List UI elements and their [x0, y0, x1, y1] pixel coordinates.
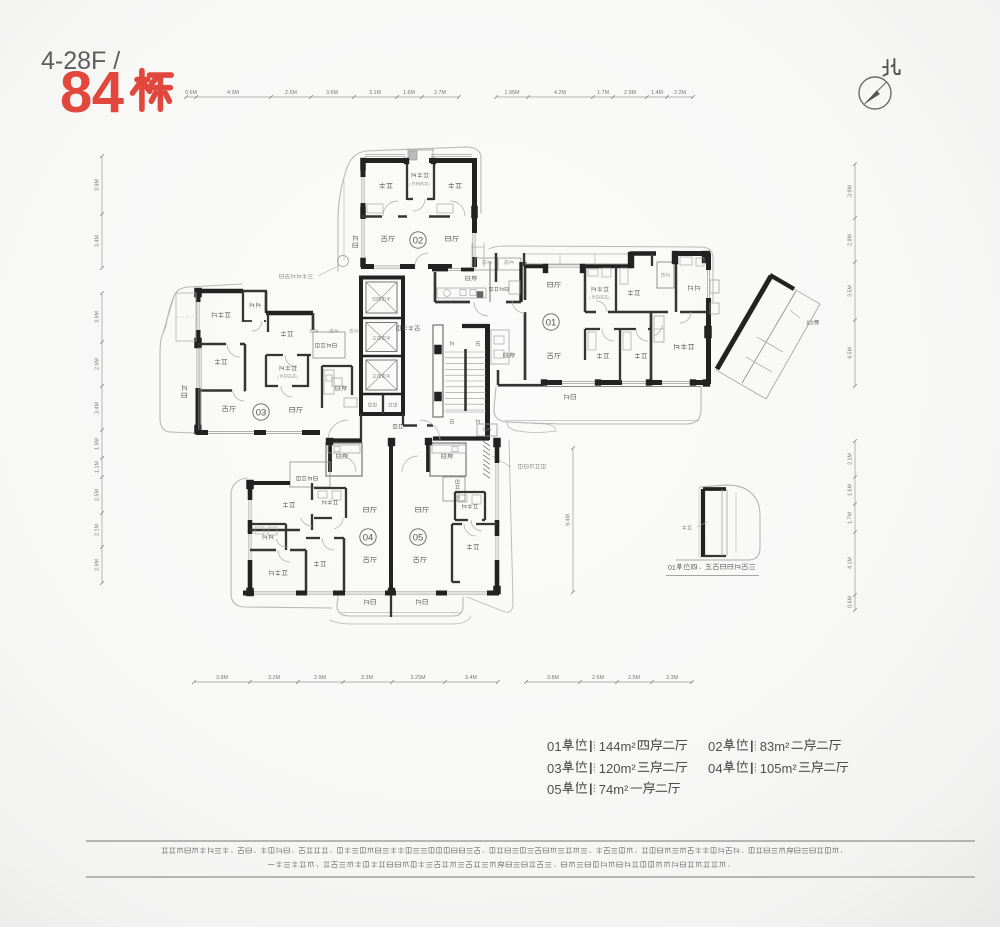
- svg-text:84: 84: [60, 60, 124, 125]
- svg-text:2.5M: 2.5M: [628, 675, 640, 681]
- svg-text:01: 01: [668, 565, 676, 572]
- svg-text:2.1M: 2.1M: [848, 452, 854, 464]
- svg-text:3.3M: 3.3M: [666, 675, 678, 681]
- svg-text:1.6M: 1.6M: [848, 483, 854, 495]
- svg-text:74m²: 74m²: [599, 782, 629, 797]
- svg-text:02: 02: [708, 739, 723, 754]
- svg-text:2.2M: 2.2M: [674, 90, 686, 96]
- svg-text:3.9M: 3.9M: [216, 675, 228, 681]
- svg-text:2.6M: 2.6M: [592, 675, 604, 681]
- svg-text:01: 01: [546, 317, 557, 328]
- svg-text:03: 03: [256, 407, 267, 418]
- svg-text:05: 05: [547, 782, 562, 797]
- svg-text:0.6M: 0.6M: [185, 90, 197, 96]
- svg-text:4.5M: 4.5M: [848, 346, 854, 358]
- svg-text:04: 04: [708, 761, 723, 776]
- svg-text:0.6M: 0.6M: [848, 595, 854, 607]
- svg-text:3.1M: 3.1M: [369, 90, 381, 96]
- svg-text:2.5M: 2.5M: [285, 90, 297, 96]
- svg-text:2.8M: 2.8M: [848, 233, 854, 245]
- svg-text:2.9M: 2.9M: [314, 675, 326, 681]
- svg-text:3.9M: 3.9M: [848, 184, 854, 196]
- svg-text:3.9M: 3.9M: [95, 310, 101, 322]
- svg-text:1.7M: 1.7M: [848, 511, 854, 523]
- svg-text:3.4M: 3.4M: [465, 675, 477, 681]
- svg-text:3.9M: 3.9M: [95, 178, 101, 190]
- svg-text:3.25M: 3.25M: [411, 675, 426, 681]
- svg-text:1.4M: 1.4M: [651, 90, 663, 96]
- svg-text:1.1M: 1.1M: [95, 460, 101, 472]
- svg-text:4.9M: 4.9M: [227, 90, 239, 96]
- svg-text:105m²: 105m²: [760, 761, 798, 776]
- svg-text:9.4M: 9.4M: [566, 513, 572, 525]
- svg-text:3.8M: 3.8M: [547, 675, 559, 681]
- svg-text:3.2M: 3.2M: [268, 675, 280, 681]
- svg-text:2.1M: 2.1M: [95, 523, 101, 535]
- svg-text:2.9M: 2.9M: [624, 90, 636, 96]
- svg-text:83m²: 83m²: [760, 739, 790, 754]
- svg-text:05: 05: [413, 532, 424, 543]
- svg-text:2.5M: 2.5M: [95, 488, 101, 500]
- svg-text:01: 01: [547, 739, 562, 754]
- svg-text:120m²: 120m²: [599, 761, 637, 776]
- svg-text:3.4M: 3.4M: [95, 234, 101, 246]
- svg-text:3.3M: 3.3M: [361, 675, 373, 681]
- svg-text:3.5M: 3.5M: [848, 284, 854, 296]
- svg-text:4.2M: 4.2M: [554, 90, 566, 96]
- svg-text:1.6M: 1.6M: [403, 90, 415, 96]
- svg-text:3.6M: 3.6M: [326, 90, 338, 96]
- svg-text:4.1M: 4.1M: [848, 556, 854, 568]
- svg-text:2.7M: 2.7M: [434, 90, 446, 96]
- svg-text:1.9M: 1.9M: [95, 437, 101, 449]
- svg-text:1.95M: 1.95M: [505, 90, 520, 96]
- svg-text:1.7M: 1.7M: [597, 90, 609, 96]
- svg-text:04: 04: [363, 532, 374, 543]
- svg-text:3.4M: 3.4M: [95, 401, 101, 413]
- svg-text:83: 83: [807, 321, 814, 327]
- svg-text:03: 03: [547, 761, 562, 776]
- svg-text:2.9M: 2.9M: [95, 558, 101, 570]
- svg-text:2.9M: 2.9M: [95, 357, 101, 369]
- svg-text:02: 02: [413, 235, 424, 246]
- svg-text:144m²: 144m²: [599, 739, 637, 754]
